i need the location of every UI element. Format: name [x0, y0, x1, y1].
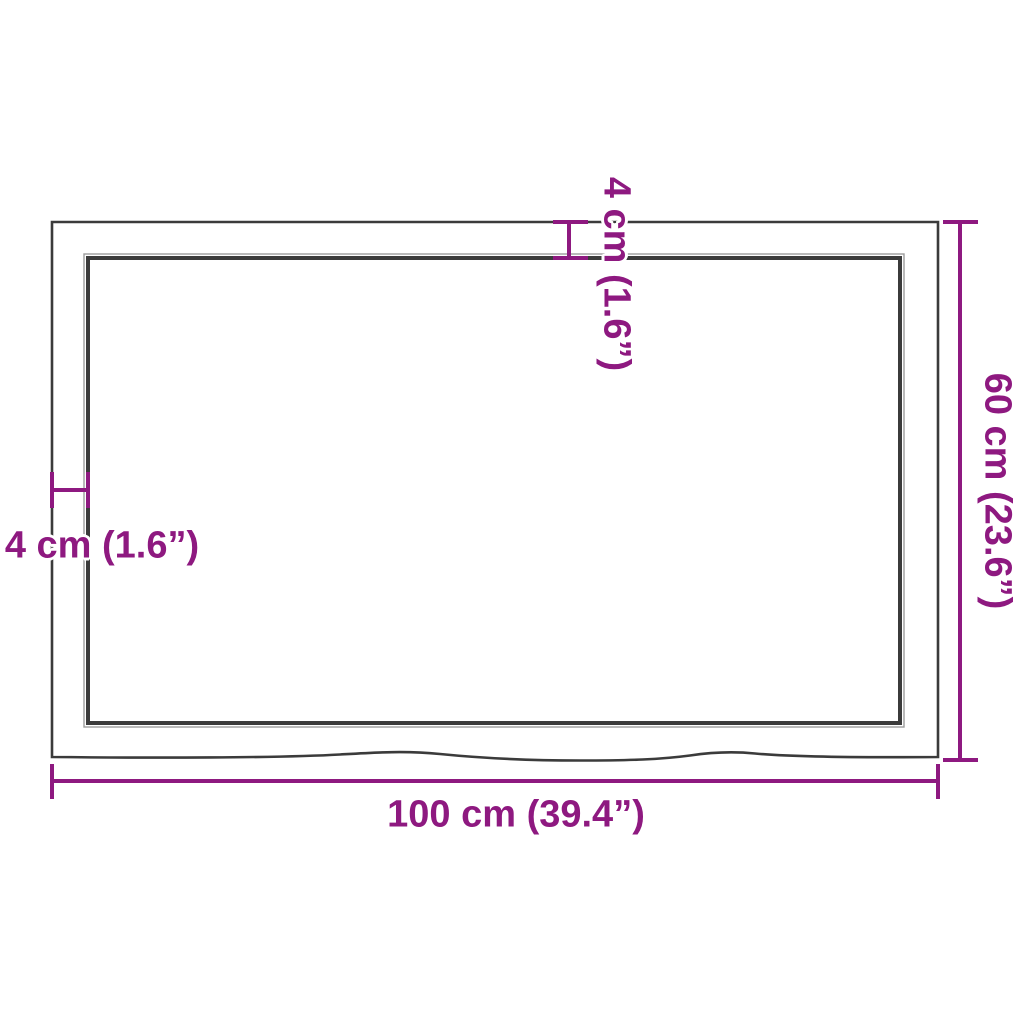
left-thickness-label: 4 cm (1.6”): [5, 525, 199, 568]
top-thickness-label: 4 cm (1.6”): [595, 177, 638, 371]
height-label: 60 cm (23.6”): [976, 373, 1019, 610]
top-thickness-bracket: [553, 222, 588, 258]
inner-edge-rect: [88, 258, 900, 723]
outer-edge-shape: [52, 222, 938, 761]
width-label: 100 cm (39.4”): [387, 794, 645, 837]
inner-edge-highlight: [84, 254, 904, 727]
left-thickness-bracket: [52, 472, 88, 508]
height-dimension-line: [943, 222, 978, 760]
dimension-diagram: 100 cm (39.4”) 60 cm (23.6”) 4 cm (1.6”)…: [0, 0, 1024, 1024]
diagram-drawing: [0, 0, 1024, 1024]
